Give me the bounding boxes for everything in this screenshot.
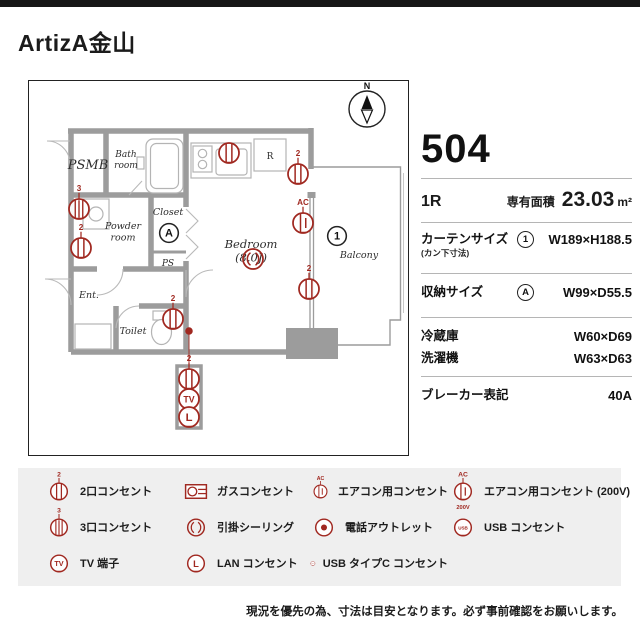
legend-label: USB タイプC コンセント xyxy=(323,555,448,571)
legend-item-outlet: 22口コンセント xyxy=(44,473,181,509)
legend-item-gas: ガスコンセント xyxy=(181,473,309,509)
area-value: 23.03 xyxy=(562,188,615,212)
storage-size-value: W99×D55.5 xyxy=(563,285,632,300)
phone-symbol-icon xyxy=(309,508,339,547)
breaker-row: ブレーカー表記 40A xyxy=(421,376,632,413)
curtain-size-value: W189×H188.5 xyxy=(549,232,632,247)
top-bar xyxy=(0,0,640,7)
lan-symbol-icon: L xyxy=(179,407,199,427)
room-label-bedroom: Bedroom(8.0J) xyxy=(224,237,278,265)
disclaimer-note: 現況を優先の為、寸法は目安となります。必ず事前確認をお願いします。 xyxy=(246,603,623,619)
ceiling-symbol-icon xyxy=(181,508,211,547)
room-label-closet: Closet xyxy=(153,207,184,218)
compass-icon: N xyxy=(349,81,385,127)
curtain-marker-1: 1 xyxy=(517,231,534,248)
room-label-ent: Ent. xyxy=(78,290,99,301)
room-label-r: R xyxy=(267,152,274,162)
floor-plan-annotations: PSMBBathroomPowderroomClosetPSBedroom(8.… xyxy=(67,143,379,427)
tv-symbol-icon: TV xyxy=(44,544,74,583)
legend-panel: 22口コンセントガスコンセントACエアコン用コンセントAC200Vエアコン用コン… xyxy=(18,468,621,586)
fridge-value: W60×D69 xyxy=(574,329,632,344)
legend-grid: 22口コンセントガスコンセントACエアコン用コンセントAC200Vエアコン用コン… xyxy=(18,468,621,581)
outlet-symbol-icon: 2 xyxy=(44,472,74,511)
outlet-symbol-icon: 2 xyxy=(163,294,183,329)
svg-text:AC: AC xyxy=(458,472,468,478)
svg-text:AC: AC xyxy=(297,198,309,207)
legend-item-outlet3: 33口コンセント xyxy=(44,509,181,545)
compass-north-label: N xyxy=(364,81,371,91)
washer-label: 洗濯機 xyxy=(421,351,517,367)
area-label: 専有面積 xyxy=(507,193,555,210)
floor-plan-panel: N PSMBBathroomPowderroomClosetPSBedroom(… xyxy=(28,80,409,456)
room-label-balcony: Balcony xyxy=(339,250,379,261)
floor-plan: N PSMBBathroomPowderroomClosetPSBedroom(… xyxy=(29,81,408,455)
svg-text:A: A xyxy=(165,228,173,240)
outlet-symbol-icon: 2 xyxy=(288,149,308,184)
shoe-cabinet xyxy=(75,324,111,349)
layout-type: 1R xyxy=(421,193,441,211)
storage-size-row: 収納サイズ A W99×D55.5 xyxy=(421,273,632,317)
svg-text:L: L xyxy=(193,558,199,568)
usb-symbol-icon: USB xyxy=(448,508,478,547)
breaker-label: ブレーカー表記 xyxy=(421,388,517,404)
legend-item-usb: USBUSB コンセント xyxy=(448,509,630,545)
room-label-psmb: PSMB xyxy=(67,158,109,173)
legend-item-lan: LLAN コンセント xyxy=(181,545,309,581)
storage-size-label: 収納サイズ xyxy=(421,285,517,301)
curtain-size-row: カーテンサイズ (カン下寸法) 1 W189×H188.5 xyxy=(421,222,632,273)
svg-text:AC: AC xyxy=(317,475,325,481)
legend-item-usbc: USB-CUSB タイプC コンセント xyxy=(309,545,448,581)
storage-marker-a: A xyxy=(517,284,534,301)
room-label-bath: Bathroom xyxy=(114,150,138,171)
fridge-label: 冷蔵庫 xyxy=(421,329,517,345)
svg-text:2: 2 xyxy=(187,354,192,363)
curtain-size-label: カーテンサイズ xyxy=(421,232,517,248)
legend-item-ac200: AC200Vエアコン用コンセント (200V) xyxy=(448,473,630,509)
area-unit: m² xyxy=(617,195,632,209)
area-row: 1R 専有面積 23.03 m² xyxy=(421,178,632,222)
svg-text:2: 2 xyxy=(171,294,176,303)
washer-value: W63×D63 xyxy=(574,351,632,366)
legend-item-tv: TVTV 端子 xyxy=(44,545,181,581)
info-panel: 504 1R 専有面積 23.03 m² カーテンサイズ (カン下寸法) 1 W… xyxy=(421,129,632,412)
legend-label: LAN コンセント xyxy=(217,555,298,571)
svg-text:3: 3 xyxy=(77,184,82,193)
circled-marker-1: 1 xyxy=(328,227,347,246)
svg-text:L: L xyxy=(186,412,193,424)
breaker-value: 40A xyxy=(608,388,632,403)
legend-label: 2口コンセント xyxy=(80,483,152,499)
ac200-symbol-icon: AC200V xyxy=(448,472,478,511)
room-label-ps: PS xyxy=(161,259,174,269)
legend-label: USB コンセント xyxy=(484,519,565,535)
svg-text:2: 2 xyxy=(307,264,312,273)
legend-item-ceiling: 引掛シーリング xyxy=(181,509,309,545)
lan-symbol-icon: L xyxy=(181,544,211,583)
legend-item-phone: 電話アウトレット xyxy=(309,509,448,545)
appliance-rows: 冷蔵庫 W60×D69 洗濯機 W63×D63 xyxy=(421,317,632,375)
room-label-toilet: Toilet xyxy=(120,326,147,337)
svg-text:2: 2 xyxy=(296,149,301,158)
legend-label: ガスコンセント xyxy=(217,483,294,499)
curtain-size-sublabel: (カン下寸法) xyxy=(421,248,517,259)
legend-label: エアコン用コンセント xyxy=(338,483,448,499)
svg-text:2: 2 xyxy=(57,472,61,478)
legend-item-ac: ACエアコン用コンセント xyxy=(309,473,448,509)
svg-text:3: 3 xyxy=(57,508,61,514)
gas-symbol-icon xyxy=(181,472,211,511)
phone-dot-symbol-icon xyxy=(185,327,193,335)
legend-label: TV 端子 xyxy=(80,555,119,571)
room-number: 504 xyxy=(421,129,632,178)
svg-text:TV: TV xyxy=(183,394,194,404)
svg-text:USB: USB xyxy=(458,525,468,530)
legend-label: 3口コンセント xyxy=(80,519,152,535)
tv-symbol-icon: TV xyxy=(179,389,199,409)
legend-label: エアコン用コンセント (200V) xyxy=(484,483,630,499)
svg-text:1: 1 xyxy=(334,231,340,243)
room-label-powder: Powderroom xyxy=(104,221,143,244)
outlet-symbol-icon: 2 xyxy=(179,354,199,389)
outlet3-symbol-icon: 3 xyxy=(44,508,74,547)
legend-label: 電話アウトレット xyxy=(345,519,433,535)
svg-text:2: 2 xyxy=(79,223,84,232)
usbc-symbol-icon: USB-C xyxy=(309,544,317,583)
svg-text:TV: TV xyxy=(54,559,63,568)
circled-marker-a: A xyxy=(160,224,179,243)
outlet-symbol-icon: 2 xyxy=(299,264,319,299)
legend-label: 引掛シーリング xyxy=(217,519,294,535)
ac-symbol-icon: AC xyxy=(309,472,332,511)
outlet-symbol-icon xyxy=(219,143,239,163)
page-title: ArtizA金山 xyxy=(18,24,136,58)
